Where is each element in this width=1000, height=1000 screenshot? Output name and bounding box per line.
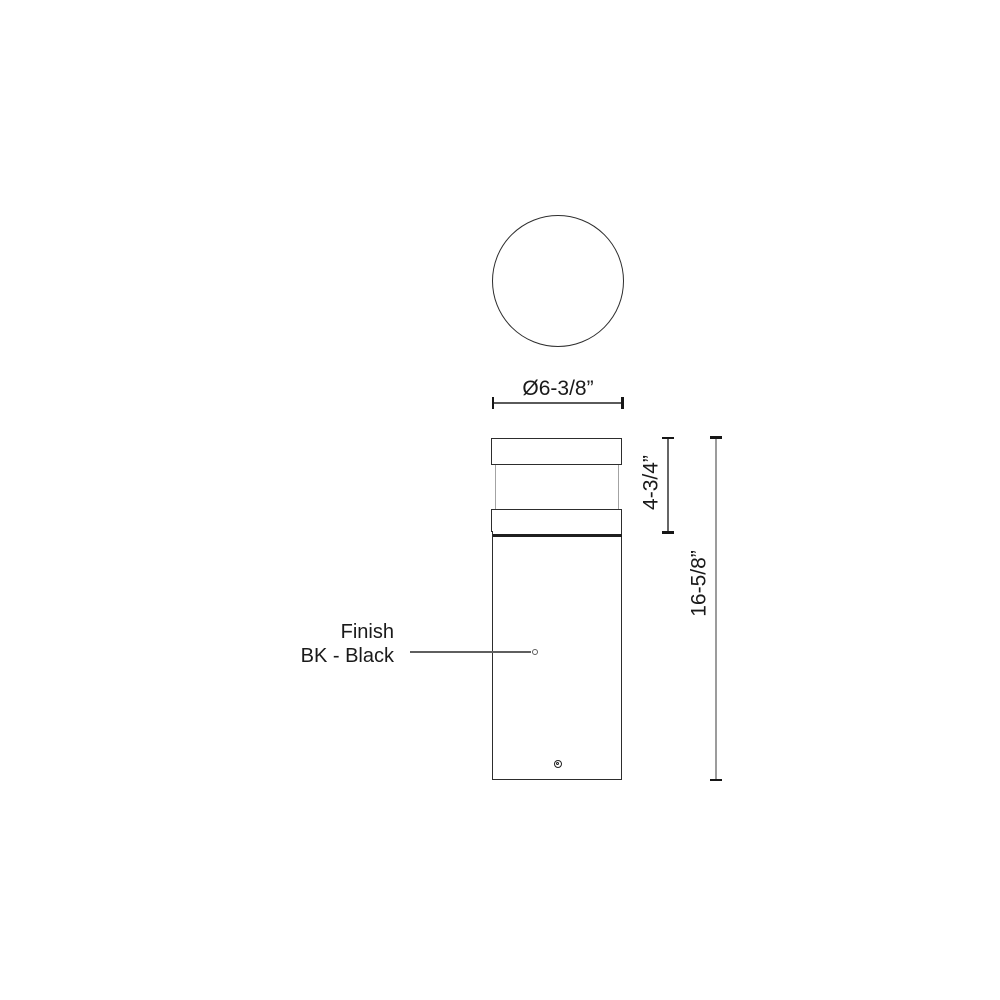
overall-height-dimension-label: 16-5/8”: [687, 514, 712, 654]
fixture-top-cap: [491, 438, 622, 465]
finish-callout-line1: Finish: [278, 620, 394, 644]
head-height-dimension-line: [667, 438, 669, 533]
finish-leader-line: [410, 651, 531, 652]
overall-height-dimension-tick-top: [710, 436, 723, 439]
diameter-dimension-line: [493, 402, 623, 404]
fixture-lower-band: [491, 509, 622, 532]
head-height-dimension-label: 4-3/4”: [639, 423, 664, 543]
fixture-body-seam-line: [493, 534, 622, 537]
overall-height-dimension-tick-bottom: [710, 779, 723, 782]
finish-callout-line2: BK - Black: [278, 644, 394, 668]
diameter-dimension-tick-right: [621, 397, 624, 409]
diameter-dimension-tick-left: [492, 397, 495, 409]
finish-callout-label: Finish BK - Black: [278, 620, 394, 668]
top-view-circle: [492, 215, 624, 347]
overall-height-dimension-line: [715, 438, 717, 781]
spec-drawing-canvas: Ø6-3/8” Finish BK - Black 4-3/4” 16-5/8”: [0, 0, 1000, 1000]
diameter-dimension-label: Ø6-3/8”: [458, 376, 658, 402]
fixture-lens-section: [495, 465, 619, 510]
fixture-body: [492, 531, 622, 780]
